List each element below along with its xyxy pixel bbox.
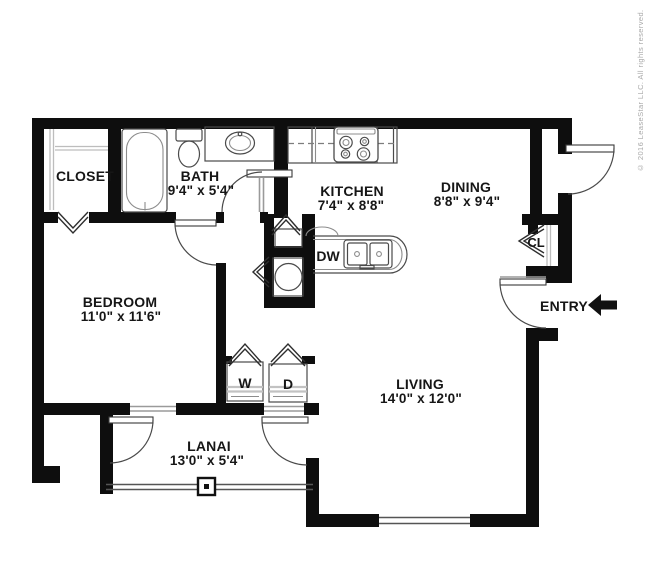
copyright-text: © 2016 LeaseStar LLC. All rights reserve… [636, 12, 645, 172]
bedroom-door [175, 220, 216, 265]
cl-closet-rod [547, 225, 551, 266]
wall-lanai-top-1 [32, 403, 130, 415]
wall-bath-south-1 [32, 212, 58, 223]
wall-bath-kitchen [274, 118, 288, 218]
stove-icon [334, 127, 378, 162]
floorplan-canvas: CLOSET BATH 9'4" x 5'4" KITCHEN 7'4" x 8… [0, 0, 650, 585]
windows [130, 277, 546, 524]
bathtub-icon [122, 129, 167, 212]
wall-bath-south-2 [89, 212, 176, 223]
dining-dims: 8'8" x 9'4" [434, 194, 500, 209]
lanai-left-door [109, 417, 153, 463]
dining-side-door [566, 145, 614, 194]
wall-left [32, 118, 44, 470]
entry-arrow-icon [588, 294, 617, 316]
kitchen-label: KITCHEN [320, 183, 384, 199]
entry-label: ENTRY [540, 298, 588, 314]
living-dims: 14'0" x 12'0" [380, 391, 462, 406]
living-window [379, 518, 470, 524]
closet-label: CLOSET [56, 168, 114, 184]
wall-left-bottom-block [32, 466, 60, 483]
dryer-label: D [283, 376, 293, 392]
wall-wd-stub-left [216, 356, 232, 364]
lanai-label: LANAI [187, 438, 231, 454]
lanai-dims: 13'0" x 5'4" [170, 453, 244, 468]
lanai-post-dot [204, 484, 209, 489]
wall-utility-mid [264, 246, 315, 257]
wall-utility-bottom [264, 297, 315, 308]
lanai-left-door-header [130, 407, 176, 412]
bedroom-dims: 11'0" x 11'6" [81, 309, 161, 324]
wall-bath-south-3 [216, 212, 224, 223]
toilet-icon [176, 129, 202, 167]
wall-lanai-top-3 [304, 403, 319, 415]
living-label: LIVING [396, 376, 444, 392]
lanai-screen [106, 478, 313, 495]
kitchen-sink-icon [344, 240, 392, 269]
wall-cl-left-stub [528, 214, 538, 234]
wall-right-upper [558, 193, 572, 278]
dryer-bifold-door [271, 344, 305, 366]
floorplan-drawing: CLOSET BATH 9'4" x 5'4" KITCHEN 7'4" x 8… [0, 0, 650, 585]
dining-label: DINING [441, 179, 491, 195]
washer-bifold-door [229, 344, 261, 366]
wall-living-bottom-right [470, 514, 539, 527]
wall-living-right [526, 328, 539, 527]
wall-dining-right [530, 126, 542, 222]
wall-bedroom-right [216, 263, 226, 415]
kitchen-dims: 7'4" x 8'8" [318, 198, 384, 213]
lanai-right-door [262, 417, 308, 465]
washer-label: W [238, 375, 252, 391]
pantry-cabinet [275, 229, 302, 247]
wall-entry-corner [546, 266, 572, 283]
dishwasher-label: DW [316, 248, 340, 264]
closet-bifold-door [58, 212, 88, 233]
bath-label: BATH [181, 168, 220, 184]
bath-dims: 9'4" x 5'4" [168, 183, 234, 198]
bedroom-label: BEDROOM [83, 294, 158, 310]
lanai-right-door-header [264, 407, 304, 412]
bath-sink-icon [205, 127, 274, 161]
water-heater-icon [273, 258, 303, 296]
cl-label: CL [527, 235, 544, 250]
wall-lanai-living-divider [306, 458, 319, 527]
